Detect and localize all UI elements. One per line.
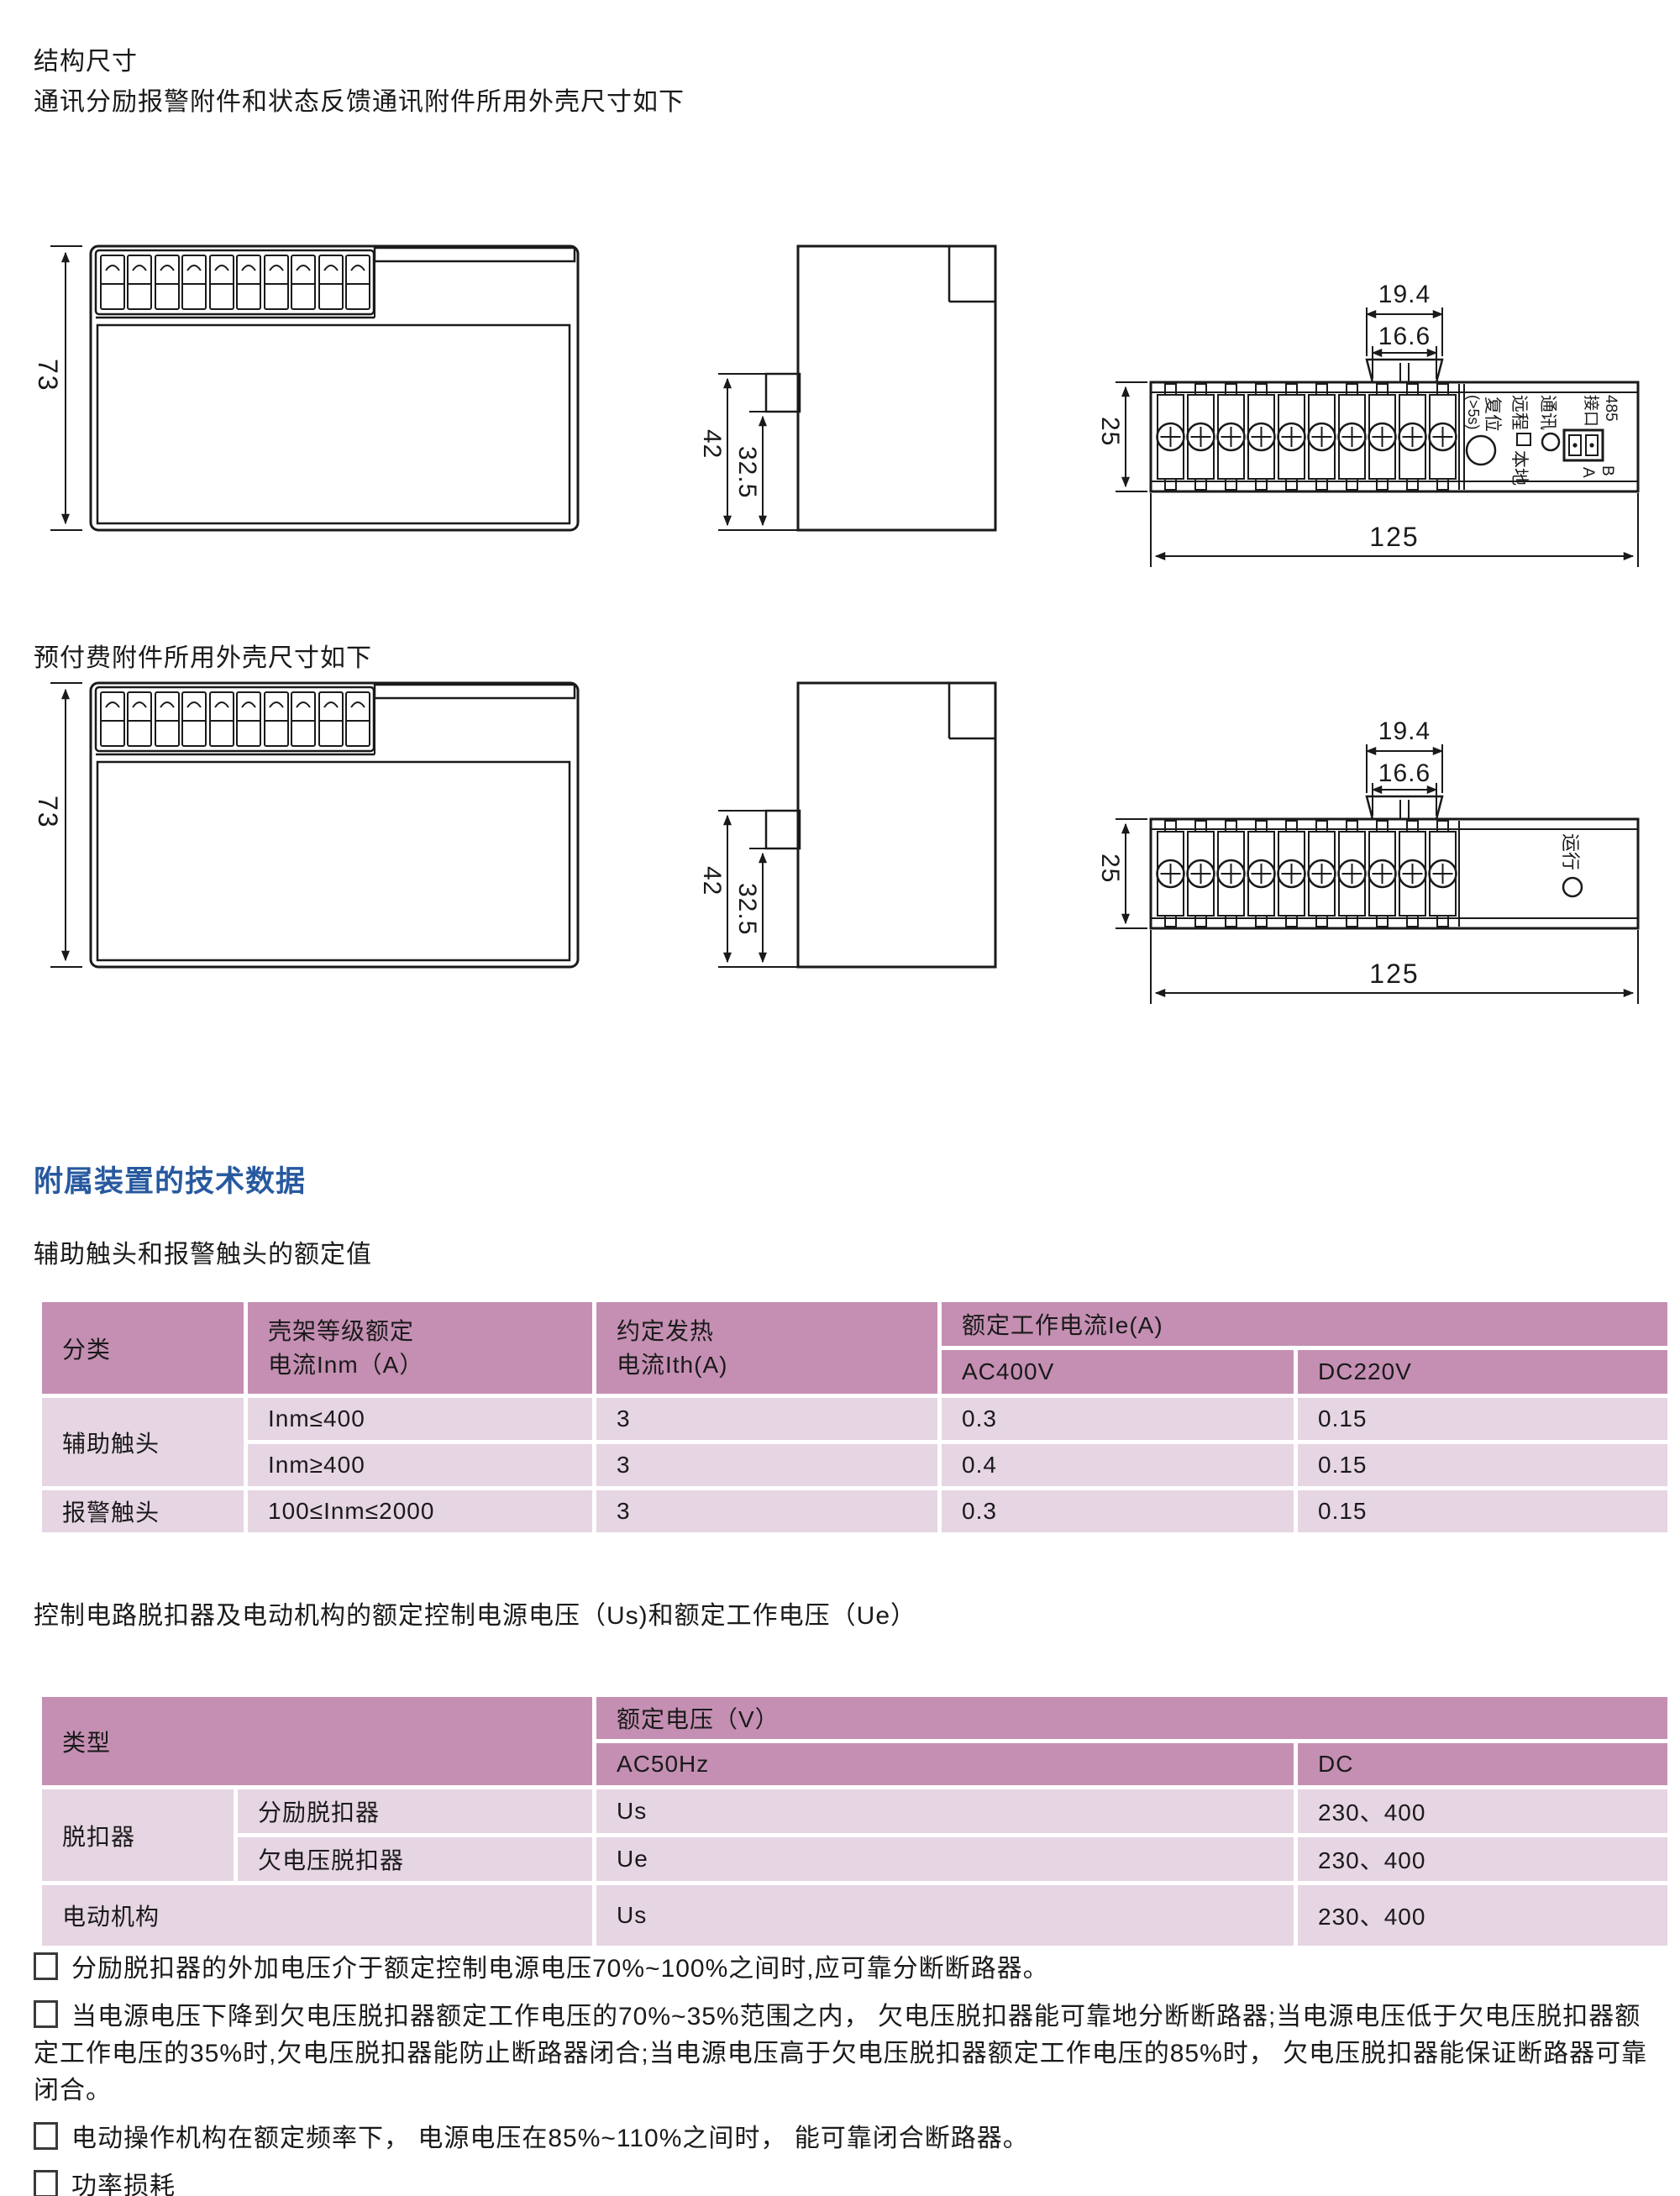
- dim-depth-label: 42: [698, 429, 726, 459]
- header-ac50hz: AC50Hz: [595, 1742, 1296, 1788]
- notes-list: 分励脱扣器的外加电压介于额定控制电源电压70%~100%之间时,应可靠分断断路器…: [34, 1951, 1651, 2196]
- checkbox-icon: [34, 2000, 58, 2028]
- table-cell: 3: [595, 1489, 940, 1535]
- trip-table-caption: 控制电路脱扣器及电动机构的额定控制电源电压（Us)和额定工作电压（Ue）: [34, 1594, 916, 1631]
- table-cell: 100≤Inm≤2000: [246, 1489, 595, 1535]
- dim-tab-outer-label: 19.4: [1378, 281, 1431, 308]
- table-cell: Us: [595, 1883, 1296, 1948]
- side-view-drawing-1: 42 32.5: [672, 239, 1008, 542]
- dim-tab-outer-label: 19.4: [1378, 717, 1431, 745]
- terminal-strip: [96, 250, 374, 314]
- dim-depth-inner-label: 32.5: [733, 446, 761, 498]
- front-body-panel: [97, 325, 570, 523]
- dim-height-label: 73: [33, 796, 63, 829]
- header-dc: DC: [1296, 1742, 1670, 1788]
- checkbox-icon: [34, 2170, 58, 2196]
- section-title-structure: 结构尺寸: [34, 40, 138, 77]
- table-cell: 0.4: [940, 1442, 1296, 1489]
- front-view-drawing-2: 73: [17, 676, 605, 979]
- table-row: 脱扣器 分励脱扣器 Us 230、40024: [40, 1788, 1670, 1836]
- table-cell: 230、400: [1296, 1836, 1670, 1883]
- table-cell: 辅助触头: [40, 1396, 246, 1489]
- remote-local-switch: [1517, 433, 1530, 445]
- table-cell: 欠电压脱扣器: [236, 1836, 595, 1883]
- front-view-drawing-1: 73: [17, 239, 605, 542]
- label-run: 运行: [1560, 833, 1581, 870]
- label-remote: 远程: [1509, 395, 1529, 430]
- table-row: 电动机构 Us 230、400110、220: [40, 1883, 1670, 1948]
- aux-contacts-table: 分类 壳架等级额定 电流Inm（A） 约定发热 电流Ith(A) 额定工作电流I…: [38, 1298, 1672, 1537]
- list-item: 功率损耗: [34, 2168, 1651, 2196]
- dim-body-width-label: 125: [1369, 959, 1419, 989]
- prepay-panel: 运行: [1560, 833, 1582, 896]
- list-item: 分励脱扣器的外加电压介于额定控制电源电压70%~100%之间时,应可靠分断断路器…: [34, 1951, 1651, 1988]
- datasheet-page: 结构尺寸 通讯分励报警附件和状态反馈通讯附件所用外壳尺寸如下 73: [0, 0, 1680, 2196]
- table-cell: Inm≤400: [246, 1396, 595, 1442]
- header-type: 类型: [40, 1695, 595, 1788]
- header-ac400v: AC400V: [940, 1348, 1296, 1396]
- checkbox-icon: [34, 2122, 58, 2150]
- header-thermal-current: 约定发热 电流Ith(A): [595, 1300, 940, 1396]
- header-dc220v: DC220V: [1296, 1348, 1670, 1396]
- table-cell: Inm≥400: [246, 1442, 595, 1489]
- table-cell: 0.3: [940, 1396, 1296, 1442]
- top-view-drawing-1: 19.4 16.6 25 125 485 接口 B A 通讯 远程 本地: [1092, 269, 1680, 588]
- reset-button: [1467, 436, 1495, 465]
- side-outline: [798, 246, 995, 530]
- subtitle-comm-accessory: 通讯分励报警附件和状态反馈通讯附件所用外壳尺寸如下: [34, 81, 685, 118]
- table-cell: 3: [595, 1442, 940, 1489]
- label-reset-time: (>5s): [1465, 395, 1482, 430]
- header-class: 分类: [40, 1300, 246, 1396]
- table-cell: 0.15: [1296, 1442, 1670, 1489]
- table-cell: 3: [595, 1396, 940, 1442]
- label-local: 本地: [1509, 450, 1529, 486]
- table-cell: 0.3: [940, 1489, 1296, 1535]
- table-cell: 电动机构: [40, 1883, 595, 1948]
- header-frame-current: 壳架等级额定 电流Inm（A）: [246, 1300, 595, 1396]
- subtitle-prepay-accessory: 预付费附件所用外壳尺寸如下: [34, 637, 372, 674]
- label-reset: 复位: [1483, 397, 1502, 432]
- header-rated-voltage: 额定电压（V）: [595, 1695, 1670, 1742]
- label-port-a: A: [1579, 467, 1597, 478]
- table-cell: 230、400: [1296, 1788, 1670, 1836]
- table-cell: 脱扣器: [40, 1788, 236, 1883]
- dim-body-height-label: 25: [1096, 417, 1124, 446]
- run-led: [1563, 878, 1582, 896]
- dim-depth-inner-label: 32.5: [733, 883, 761, 935]
- table-row: 欠电压脱扣器 Ue 230、400——: [40, 1836, 1670, 1883]
- table-cell: 报警触头: [40, 1489, 246, 1535]
- comm-led: [1542, 433, 1559, 450]
- enclosure-outline: [91, 246, 578, 530]
- table-cell: Ue: [595, 1836, 1296, 1883]
- comm-panel: 485 接口 B A 通讯 远程 本地 复位 (>5s): [1465, 395, 1620, 486]
- list-item: 当电源电压下降到欠电压脱扣器额定工作电压的70%~35%范围之内， 欠电压脱扣器…: [34, 1999, 1651, 2109]
- label-comm: 通讯: [1538, 395, 1557, 430]
- screw-terminals: [1158, 384, 1457, 490]
- header-rated-current: 额定工作电流Ie(A): [940, 1300, 1670, 1348]
- dim-height-label: 73: [33, 359, 63, 392]
- table-row: 报警触头 100≤Inm≤2000 3 0.3 0.15: [40, 1489, 1670, 1535]
- table-cell: 0.15: [1296, 1489, 1670, 1535]
- dim-tab-inner-label: 16.6: [1378, 323, 1431, 350]
- top-cap: [375, 248, 575, 261]
- side-tab: [766, 374, 800, 412]
- label-port-b: B: [1599, 465, 1616, 476]
- table-cell: 230、400: [1296, 1883, 1670, 1948]
- table-cell: 分励脱扣器: [236, 1788, 595, 1836]
- dim-tab-inner-label: 16.6: [1378, 759, 1431, 787]
- list-item: 电动操作机构在额定频率下， 电源电压在85%~110%之间时， 能可靠闭合断路器…: [34, 2120, 1651, 2157]
- label-interface: 接口: [1582, 395, 1600, 427]
- aux-table-caption: 辅助触头和报警触头的额定值: [34, 1233, 372, 1270]
- label-485: 485: [1602, 395, 1620, 422]
- top-view-drawing-2: 19.4 16.6 25 125 运行: [1092, 706, 1680, 1025]
- dim-depth-label: 42: [698, 866, 726, 896]
- din-clip-tab: [1367, 360, 1442, 382]
- table-cell: 0.15: [1296, 1396, 1670, 1442]
- screw-terminals: [1158, 821, 1457, 927]
- table-row: Inm≥400 3 0.4 0.15: [40, 1442, 1670, 1489]
- table-cell: Us: [595, 1788, 1296, 1836]
- table-row: 辅助触头 Inm≤400 3 0.3 0.15: [40, 1396, 1670, 1442]
- dim-body-height-label: 25: [1096, 854, 1124, 883]
- dim-body-width-label: 125: [1369, 522, 1419, 552]
- tech-data-heading: 附属装置的技术数据: [34, 1158, 306, 1200]
- release-voltage-table: 类型 额定电压（V） AC50Hz DC 脱扣器 分励脱扣器 Us 230、40…: [38, 1693, 1672, 1950]
- checkbox-icon: [34, 1952, 58, 1980]
- side-view-drawing-2: 42 32.5: [672, 676, 1008, 979]
